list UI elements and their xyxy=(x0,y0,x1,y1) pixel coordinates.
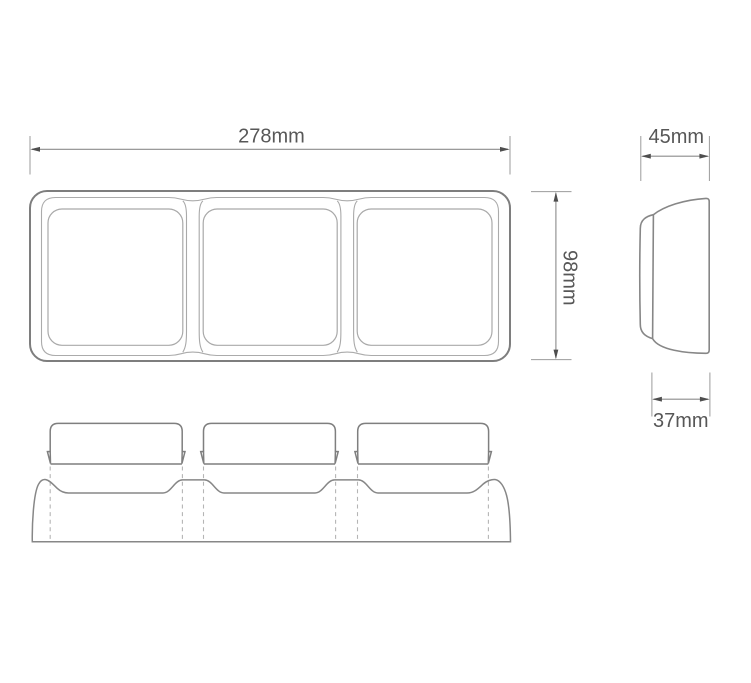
svg-text:45mm: 45mm xyxy=(649,126,705,148)
svg-text:98mm: 98mm xyxy=(559,250,581,306)
svg-text:278mm: 278mm xyxy=(238,126,305,148)
svg-text:37mm: 37mm xyxy=(653,410,709,432)
